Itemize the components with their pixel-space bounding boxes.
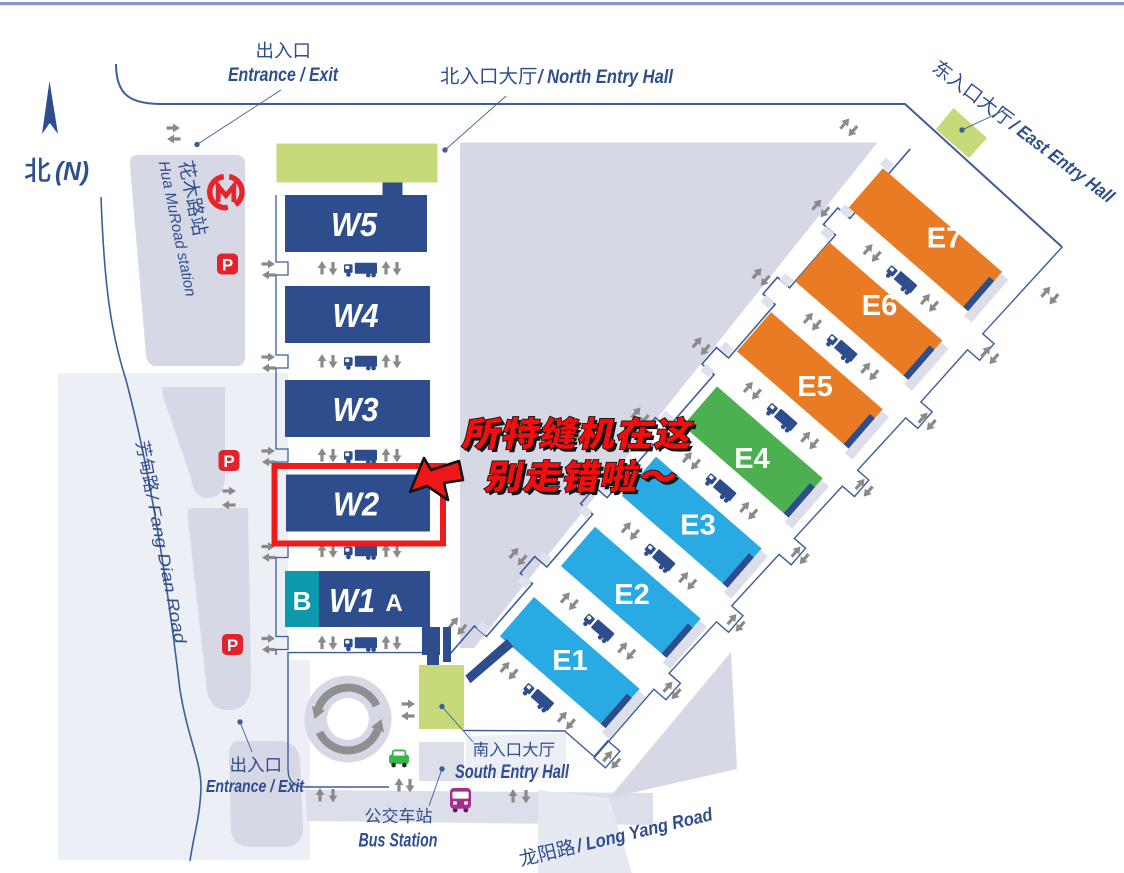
svg-text:Entrance / Exit: Entrance / Exit <box>228 65 339 86</box>
svg-text:E3: E3 <box>680 510 715 542</box>
svg-text:(N): (N) <box>55 156 89 186</box>
svg-text:/ North Entry Hall: / North Entry Hall <box>537 67 673 88</box>
svg-text:E6: E6 <box>862 290 897 322</box>
svg-text:W2: W2 <box>333 487 379 524</box>
svg-text:W1: W1 <box>329 583 375 620</box>
svg-text:W5: W5 <box>331 207 378 244</box>
svg-text:E4: E4 <box>734 443 769 475</box>
svg-text:Entrance / Exit: Entrance / Exit <box>206 776 305 796</box>
svg-text:W4: W4 <box>333 298 379 335</box>
svg-text:South Entry Hall: South Entry Hall <box>455 762 570 783</box>
svg-text:Bus Station: Bus Station <box>359 831 438 852</box>
svg-text:E1: E1 <box>552 645 587 677</box>
svg-text:W3: W3 <box>333 392 379 429</box>
svg-text:E5: E5 <box>797 371 832 403</box>
svg-text:E7: E7 <box>927 223 962 255</box>
svg-text:B: B <box>293 586 312 616</box>
svg-text:E2: E2 <box>614 579 649 611</box>
svg-text:A: A <box>385 590 402 617</box>
